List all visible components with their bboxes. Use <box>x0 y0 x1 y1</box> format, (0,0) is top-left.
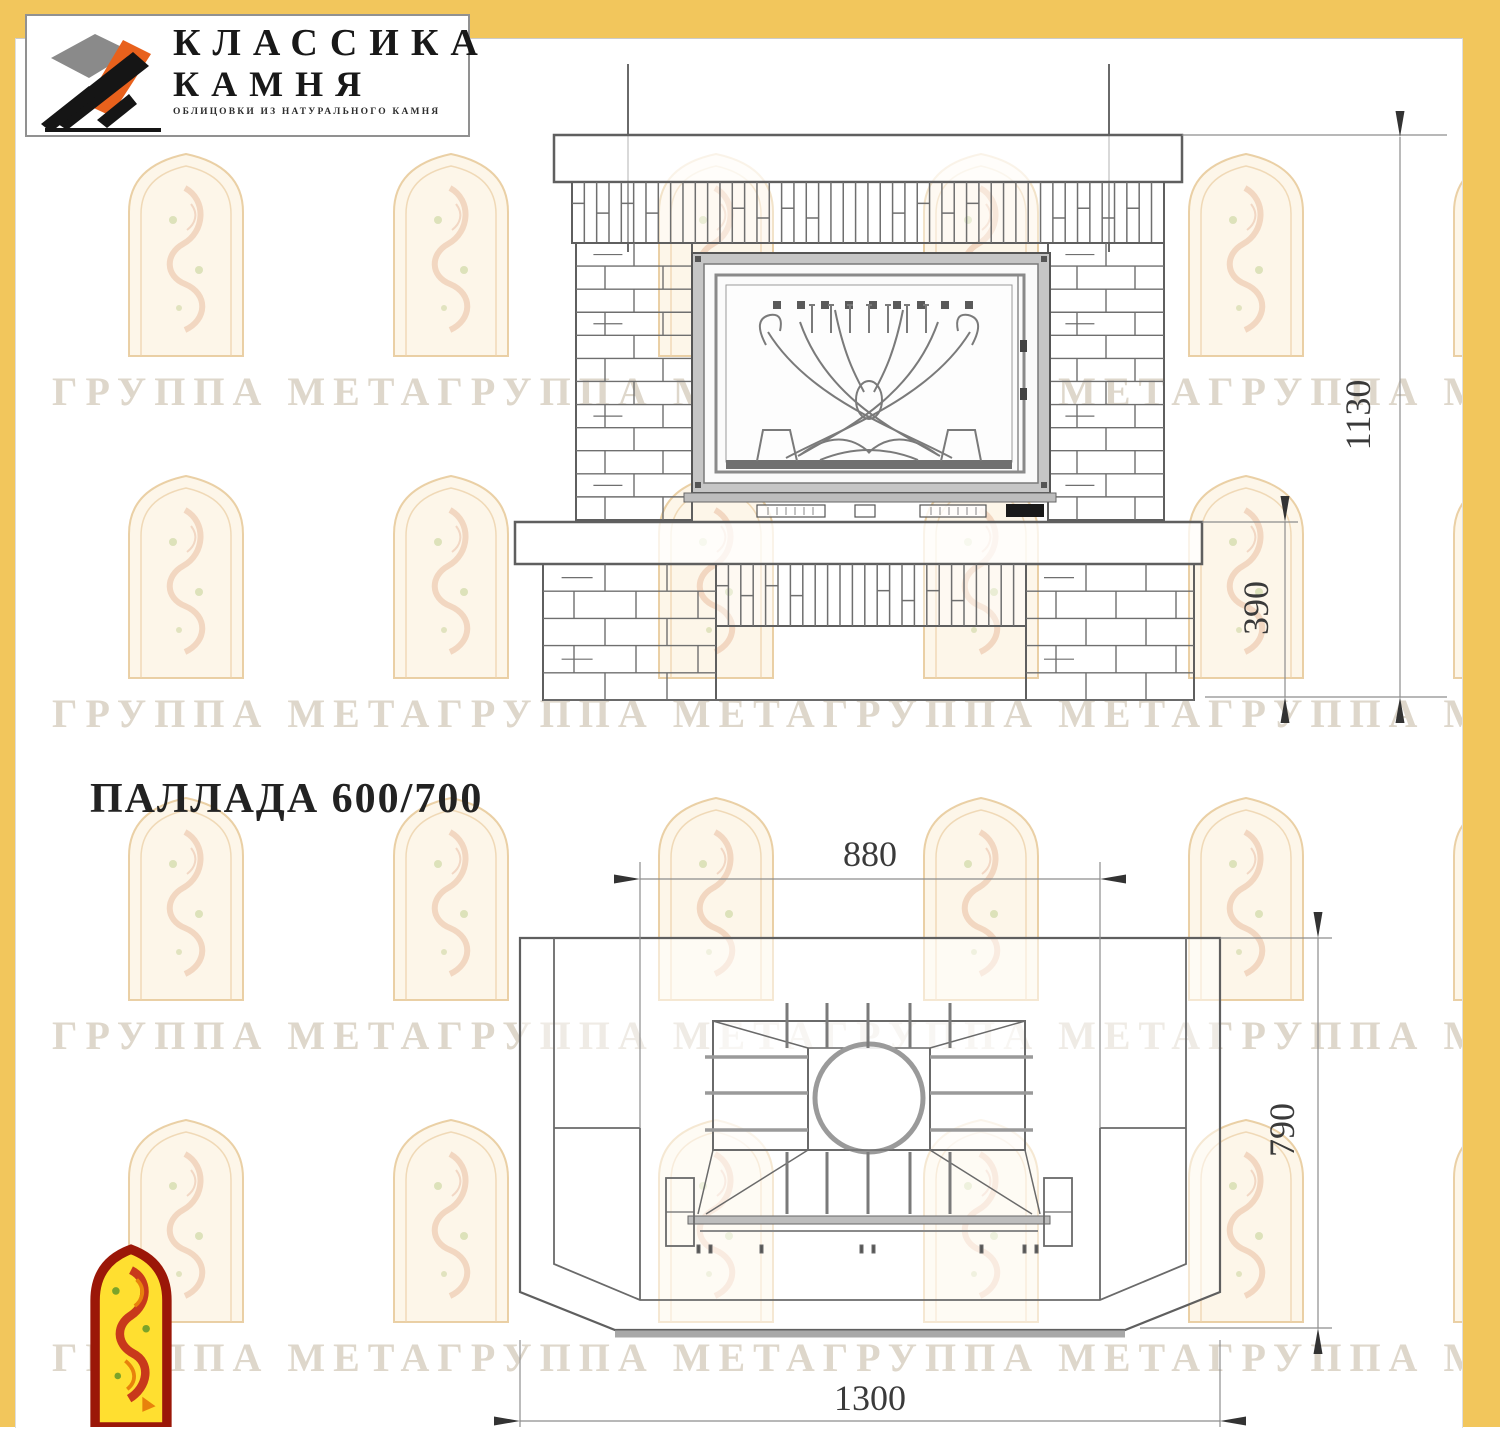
ash-vent-left <box>757 505 825 517</box>
dim-arrow <box>1314 912 1323 938</box>
dim-arrow <box>1314 1328 1323 1354</box>
plan-view: 880 790 1300 <box>520 834 1332 1427</box>
insert-sill <box>684 493 1056 502</box>
front-dimensions <box>1182 135 1447 697</box>
hearth-shelf <box>515 522 1202 564</box>
ash-vent-center <box>855 505 875 517</box>
insert-handle <box>1020 340 1027 352</box>
dim-arrow <box>494 1417 520 1426</box>
dim-arrow <box>1100 875 1126 884</box>
dim-arrow <box>614 875 640 884</box>
technical-drawing: 1130 390 <box>0 0 1500 1427</box>
brand-name-line1: КЛАССИКА <box>173 22 468 64</box>
brand-tagline: ОБЛИЦОВКИ ИЗ НАТУРАЛЬНОГО КАМНЯ <box>173 107 468 117</box>
dim-label-total-width: 1300 <box>834 1378 906 1418</box>
dim-arrow <box>1220 1417 1246 1426</box>
front-elevation-view: 1130 390 <box>515 64 1447 700</box>
dim-arrow <box>1281 697 1290 723</box>
dim-label-total-height: 1130 <box>1338 380 1378 451</box>
brand-name-line2: КАМНЯ <box>173 64 468 104</box>
base-pier-left <box>543 564 716 700</box>
insert-front-plate <box>688 1216 1050 1224</box>
insert-handle <box>1020 388 1027 400</box>
dim-arrow <box>1396 111 1405 137</box>
control-box <box>1006 504 1044 517</box>
firebox-insert-plan <box>666 1003 1072 1253</box>
meta-badge-icon <box>85 1238 177 1427</box>
dim-label-firebox-width: 880 <box>843 834 897 874</box>
firebox-insert-front <box>684 253 1056 517</box>
mantel-shelf <box>554 135 1182 182</box>
insert-vent-holes <box>773 301 973 309</box>
soldier-course-base <box>716 564 1026 626</box>
base-pier-right <box>1026 564 1194 700</box>
dim-label-hearth-height: 390 <box>1236 581 1276 635</box>
dim-label-depth: 790 <box>1262 1103 1302 1157</box>
brand-logo: КЛАССИКА КАМНЯ ОБЛИЦОВКИ ИЗ НАТУРАЛЬНОГО… <box>25 14 470 137</box>
brand-stone-icon <box>37 24 172 134</box>
scanned-drawing-page: { "brand": { "title_line1": "КЛАССИКА", … <box>0 0 1500 1427</box>
dim-arrow <box>1281 496 1290 522</box>
dim-arrow <box>1396 697 1405 723</box>
insert-grate-bar <box>726 460 1012 469</box>
flue-circle <box>815 1044 923 1152</box>
